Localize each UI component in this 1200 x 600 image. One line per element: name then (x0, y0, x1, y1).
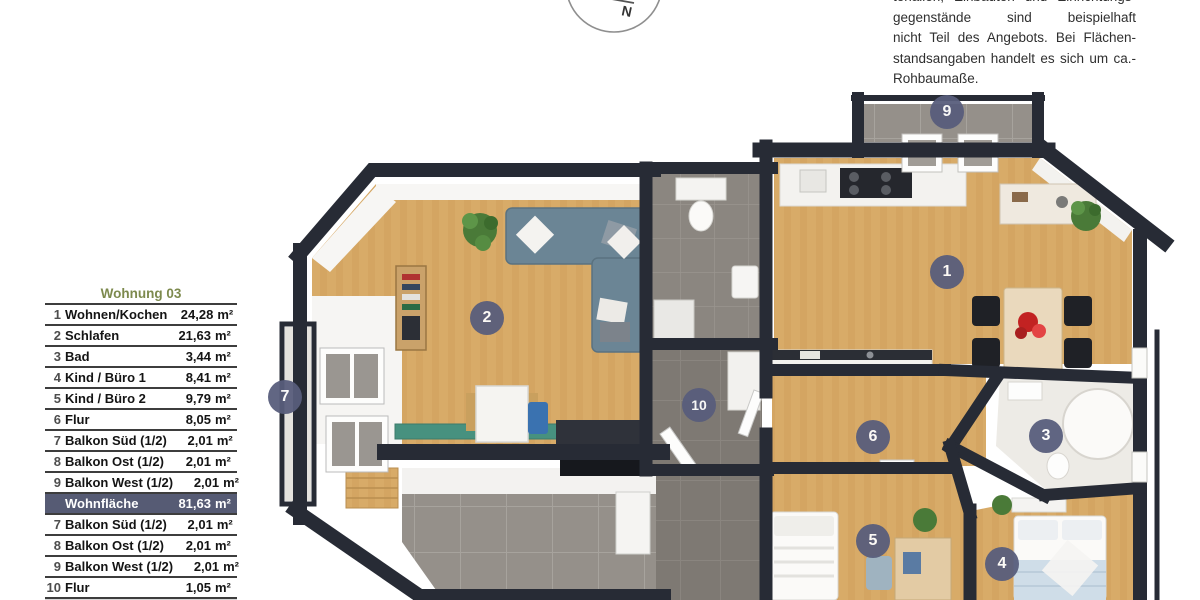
row-value: 3,44 (165, 349, 211, 364)
row-value: 81,63 (165, 496, 211, 511)
area-row-7: 7 Balkon Süd (1/2) 2,01 m² (45, 431, 237, 452)
row-num: 1 (45, 307, 65, 322)
row-value: 2,01 (165, 454, 211, 469)
row-label: Kind / Büro 1 (65, 370, 165, 385)
area-extra-row-7: 7 Balkon Süd (1/2) 2,01 m² (45, 515, 237, 536)
plant (992, 495, 1012, 515)
area-row-total: Wohnfläche 81,63 m² (45, 494, 237, 515)
row-num: 8 (45, 454, 65, 469)
area-row-9: 9 Balkon West (1/2) 2,01 m² (45, 473, 237, 494)
area-table-title: Wohnung 03 (45, 286, 237, 305)
area-row-2: 2 Schlafen 21,63 m² (45, 326, 237, 347)
row-value: 2,01 (167, 433, 213, 448)
room-badge-7: 7 (268, 380, 302, 414)
wall-face (376, 184, 644, 200)
entry-floor (652, 474, 762, 600)
row-unit: m² (213, 307, 239, 322)
row-num: 2 (45, 328, 65, 343)
row-num: 8 (45, 538, 65, 553)
area-extra-row-9: 9 Balkon West (1/2) 2,01 m² (45, 557, 237, 578)
row-num: 5 (45, 391, 65, 406)
row-unit: m² (211, 496, 237, 511)
room-badge-10: 10 (682, 388, 716, 422)
row-unit: m² (211, 412, 237, 427)
row-unit: m² (211, 580, 237, 595)
stairs (346, 468, 398, 508)
room-badge-1: 1 (930, 255, 964, 289)
row-label: Balkon Ost (1/2) (65, 454, 165, 469)
area-row-1: 1 Wohnen/Kochen 24,28 m² (45, 305, 237, 326)
row-num: 7 (45, 433, 65, 448)
row-unit: m² (211, 391, 237, 406)
row-value: 2,01 (173, 559, 219, 574)
row-label: Kind / Büro 2 (65, 391, 165, 406)
row-num: 9 (45, 559, 65, 574)
window (1132, 452, 1147, 482)
row-label: Wohnen/Kochen (65, 307, 167, 322)
window (1132, 348, 1147, 378)
wardrobe (556, 420, 644, 444)
bed-room5 (770, 512, 838, 600)
row-value: 1,05 (165, 580, 211, 595)
row-label: Balkon West (1/2) (65, 559, 173, 574)
row-label: Flur (65, 580, 165, 595)
row-value: 2,01 (165, 538, 211, 553)
row-label: Balkon West (1/2) (65, 475, 173, 490)
sideboard (1012, 498, 1066, 512)
room-badge-4: 4 (985, 547, 1019, 581)
row-unit: m² (219, 475, 245, 490)
row-value: 2,01 (173, 475, 219, 490)
row-unit: m² (211, 370, 237, 385)
room-badge-9: 9 (930, 95, 964, 129)
row-unit: m² (211, 349, 237, 364)
row-unit: m² (213, 517, 239, 532)
room-badge-2: 2 (470, 301, 504, 335)
area-extra-row-8: 8 Balkon Ost (1/2) 2,01 m² (45, 536, 237, 557)
row-value: 21,63 (165, 328, 211, 343)
row-num: 9 (45, 475, 65, 490)
area-row-3: 3 Bad 3,44 m² (45, 347, 237, 368)
cabinet (616, 492, 650, 554)
row-value: 8,41 (165, 370, 211, 385)
row-num: 6 (45, 412, 65, 427)
row-value: 2,01 (167, 517, 213, 532)
room-badge-6: 6 (856, 420, 890, 454)
row-unit: m² (211, 328, 237, 343)
row-label: Wohnfläche (65, 496, 165, 511)
row-label: Schlafen (65, 328, 165, 343)
row-label: Balkon Süd (1/2) (65, 433, 167, 448)
row-label: Flur (65, 412, 165, 427)
row-label: Balkon Süd (1/2) (65, 517, 167, 532)
plant (1071, 201, 1101, 231)
row-unit: m² (211, 538, 237, 553)
row-label: Bad (65, 349, 165, 364)
plant (913, 508, 937, 532)
row-num: 3 (45, 349, 65, 364)
area-extra-row-10: 10 Flur 1,05 m² (45, 578, 237, 599)
area-table: Wohnung 03 1 Wohnen/Kochen 24,28 m² 2 Sc… (45, 286, 237, 600)
row-num: 10 (45, 580, 65, 595)
row-num: 7 (45, 517, 65, 532)
desk-room2 (466, 386, 548, 442)
area-row-6: 6 Flur 8,05 m² (45, 410, 237, 431)
row-unit: m² (211, 454, 237, 469)
row-value: 8,05 (165, 412, 211, 427)
row-value: 24,28 (167, 307, 213, 322)
area-row-8: 8 Balkon Ost (1/2) 2,01 m² (45, 452, 237, 473)
room-badge-5: 5 (856, 524, 890, 558)
area-row-4: 4 Kind / Büro 1 8,41 m² (45, 368, 237, 389)
row-unit: m² (219, 559, 245, 574)
room-badge-3: 3 (1029, 419, 1063, 453)
row-num: 4 (45, 370, 65, 385)
floorplan-page: terialien, Einbauten und Einrichtungs- g… (0, 0, 1200, 600)
row-label: Balkon Ost (1/2) (65, 538, 165, 553)
bookshelf (396, 266, 426, 350)
area-row-5: 5 Kind / Büro 2 9,79 m² (45, 389, 237, 410)
row-value: 9,79 (165, 391, 211, 406)
row-unit: m² (213, 433, 239, 448)
